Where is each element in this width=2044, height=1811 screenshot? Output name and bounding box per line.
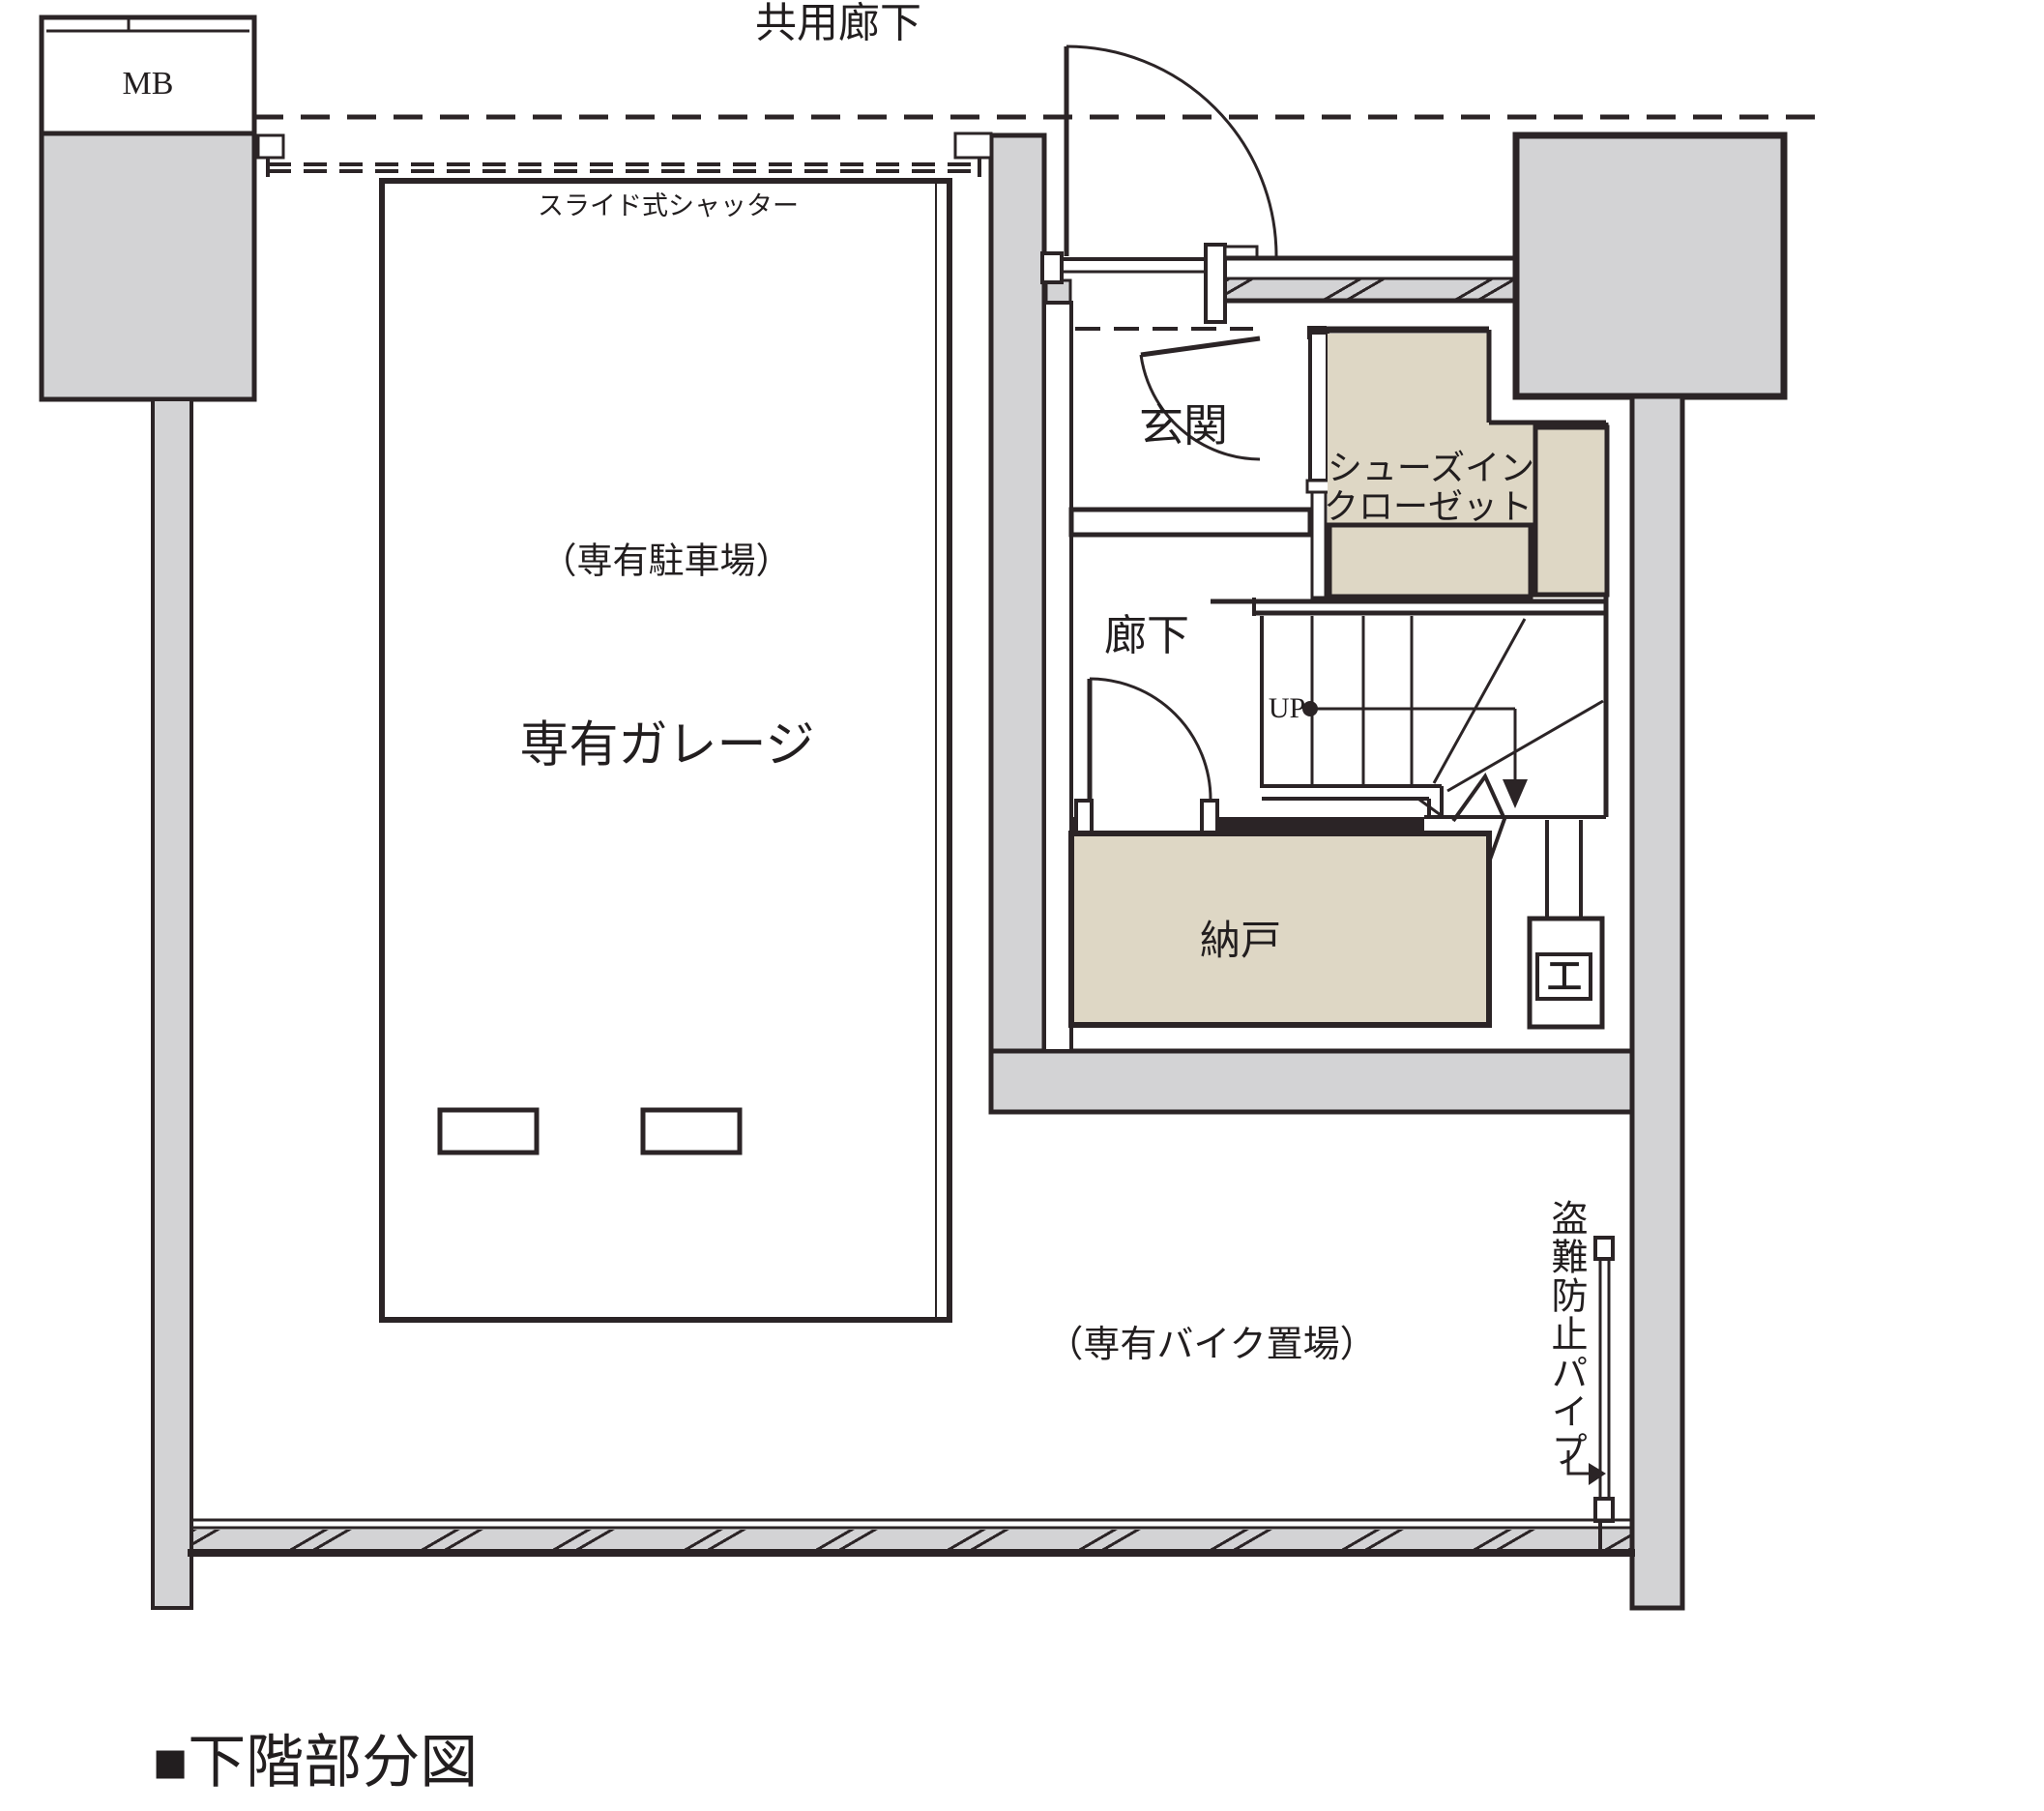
hallway-door-swing-arc [1090,679,1211,800]
private-garage-label: 専有ガレージ [520,722,815,772]
wheel-stopper-right [643,1110,740,1153]
shoes-closet-label-line2: クローゼット [1324,489,1533,524]
bottom-boundary [188,1520,1635,1553]
closet-shelf-right [1535,427,1607,595]
caption-square-icon: ■ [153,1731,188,1795]
pipe-leader-arrowhead [1589,1463,1606,1485]
sliding-shutter-label: スライド式シャッター [538,193,799,219]
steel-column-icon: 工 [1547,959,1582,994]
shared-corridor-label: 共用廊下 [755,4,921,45]
hallway-label: 廊下 [1104,615,1189,657]
genkan-hall-partition [1071,510,1310,535]
entrance-porch [1225,258,1516,301]
entrance-jamb-right [1206,245,1225,322]
sliding-shutter-line [268,159,979,177]
caption-row: ■下階部分図 [153,1734,478,1792]
up-label: UP [1269,694,1305,723]
floor-plan: 共用廊下 MB スライド式シャッター （専有駐車場） 専有ガレージ 玄関 シュー… [0,0,2044,1811]
plan-linework [0,0,2044,1811]
entrance-door [1042,46,1276,322]
wall-left-block [42,133,254,399]
unit-left-wall-inner [1044,303,1071,1051]
wall-unit-left [991,135,1044,1051]
shoes-closet [1211,330,1608,817]
wall-unit-right [1632,396,1682,1608]
pipe-bottom-bracket [1595,1499,1613,1521]
notch-door-side [955,133,991,158]
closet-shelf-bottom [1329,525,1531,597]
wall-notches [258,133,991,158]
wall-top-right-block [1516,135,1784,396]
meter-box-label: MB [123,68,174,101]
wall-left-pier [153,399,191,1608]
entrance-jamb-left [1042,253,1062,282]
wall-unit-bottom-band [991,1051,1632,1112]
shoes-closet-label-line1: シューズイン [1328,451,1534,485]
pipe-top-bracket [1595,1238,1613,1259]
wheel-stopper-left [440,1110,537,1153]
entrance-label: 玄関 [1139,404,1228,449]
down-arrowhead [1503,779,1528,808]
private-bike-label: （専有バイク置場） [1046,1327,1376,1363]
stair-winder-diagonal-1 [1434,619,1525,783]
genkan-door-leaf [1141,338,1260,355]
hallway-door [1071,679,1424,837]
private-parking-label: （専有駐車場） [541,544,792,580]
caption-title: 下階部分図 [188,1731,478,1795]
entrance-door-swing-arc [1066,46,1276,256]
storage-room-label: 納戸 [1200,921,1281,962]
notch-mb-side [258,135,283,158]
anti-theft-pipe-label: 盗難防止パイプ [1547,1199,1584,1470]
